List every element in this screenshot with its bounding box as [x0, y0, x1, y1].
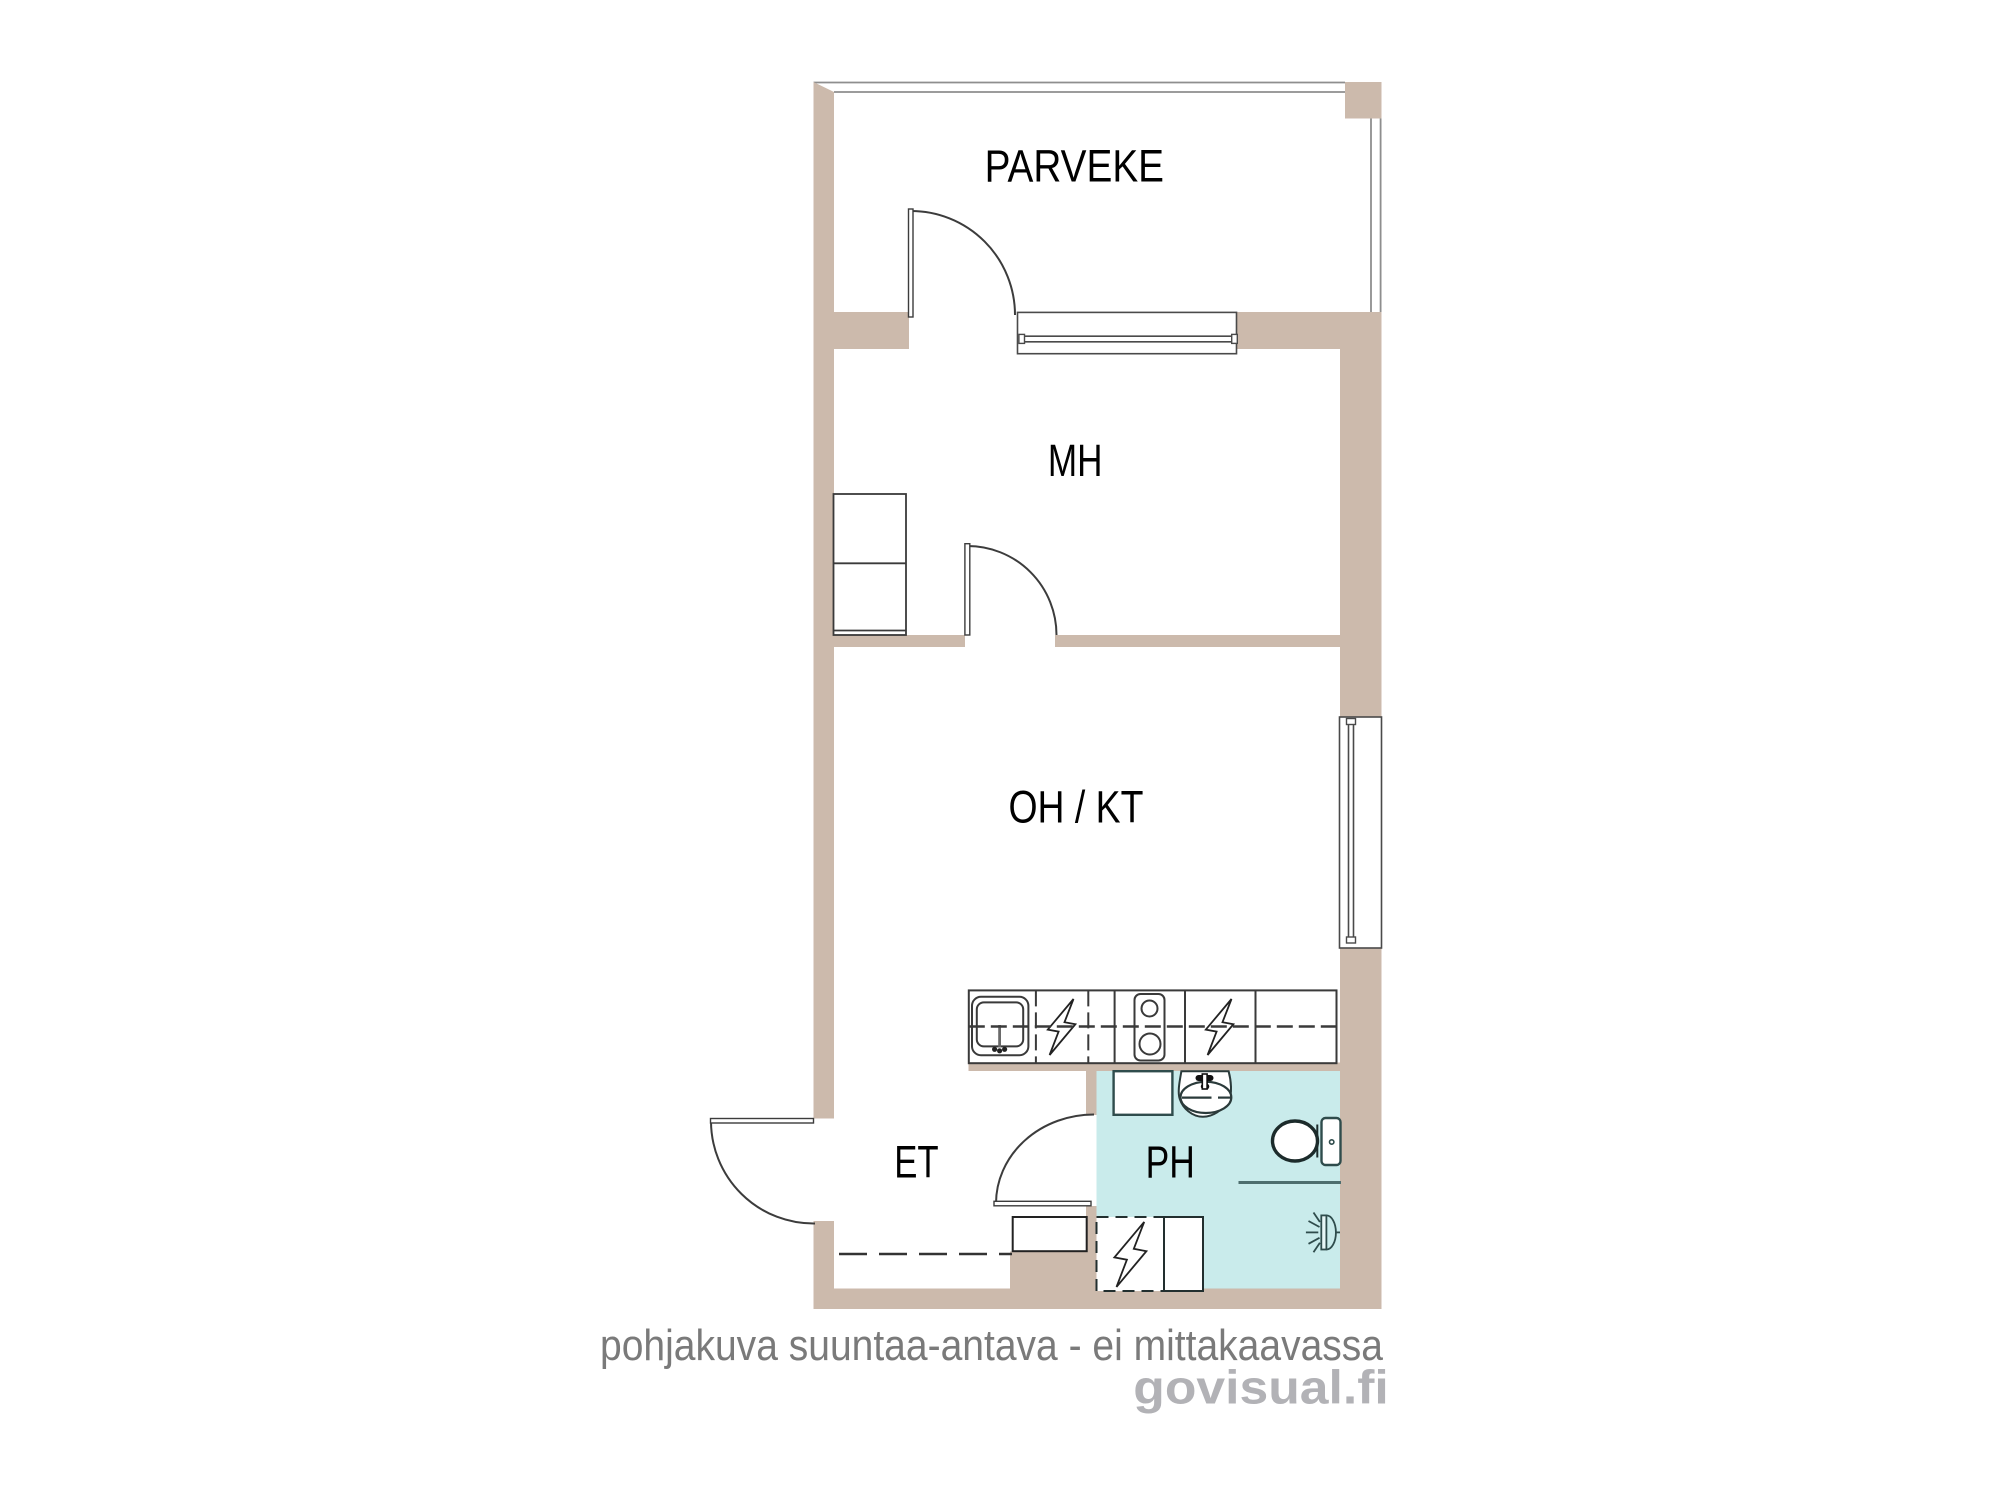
svg-text:ET: ET	[894, 1137, 938, 1188]
svg-text:PH: PH	[1146, 1136, 1195, 1187]
svg-text:OH / KT: OH / KT	[1009, 782, 1144, 833]
svg-text:PARVEKE: PARVEKE	[985, 141, 1164, 192]
svg-text:govisual.fi: govisual.fi	[1133, 1361, 1389, 1414]
svg-text:MH: MH	[1048, 435, 1103, 486]
